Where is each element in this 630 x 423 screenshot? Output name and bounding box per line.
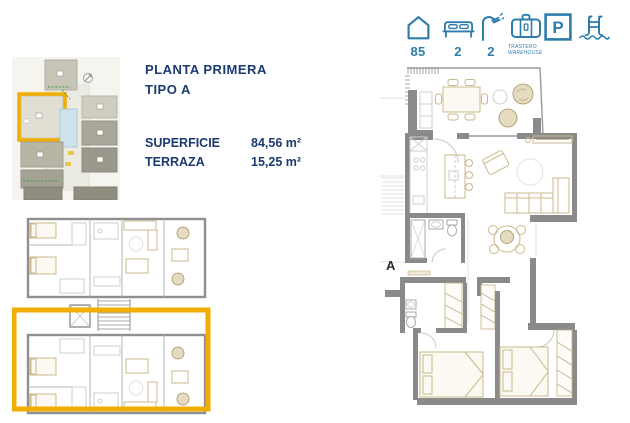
stairwell-common [380,98,406,262]
bedroom1-door-arc [421,333,436,348]
bedroom-1 [413,328,483,400]
pool-icon [577,8,611,41]
area-label: SUPERFICIE [145,134,251,153]
stat-bedrooms-value: 2 [454,44,462,59]
vanity-counter [408,271,430,275]
terrace-plant [499,109,517,127]
patio [468,218,536,323]
area-row-superficie: SUPERFICIE 84,56 m² [145,134,301,153]
overview-unit-top [28,219,205,297]
area-row-terraza: TERRAZA 15,25 m² [145,153,301,172]
bathroom-1 [405,213,465,263]
site-building-top [45,60,77,90]
site-marker [68,151,74,155]
armchair [482,150,509,175]
area-value: 15,25 m² [251,153,301,172]
floor-overview-plan [12,213,212,418]
terrace-plant [513,84,533,104]
terrace-side-table [493,90,507,104]
stat-bathrooms-value: 2 [487,44,495,59]
stat-storage: TRASTERO WAREHOUSE [508,8,544,56]
exterior-wall [417,398,577,405]
stat-pool [576,8,612,41]
kitchen [410,137,473,215]
plan-title: PLANTA PRIMERA TIPO A [145,60,267,100]
overview-stairs [70,299,130,331]
floorplan-page: { "colors": { "navy": "#1b3a70", "teal":… [0,0,630,423]
area-table: SUPERFICIE 84,56 m² TERRAZA 15,25 m² [145,134,301,172]
bedroom2-door-arc [537,330,554,347]
stat-bathrooms: 2 [477,8,505,59]
overview-unit-bottom [28,335,205,413]
kitchen-island [445,155,473,198]
wardrobe [557,330,572,396]
stat-storage-line2: WAREHOUSE [508,50,543,56]
bed-icon [442,8,475,41]
site-plan-thumbnail [12,57,120,200]
parking-glyph: P [552,18,563,37]
site-buildings-right [82,96,117,172]
unit-label: A [386,258,396,273]
house-icon [405,8,432,41]
living-room [482,136,572,213]
suitcase-icon [509,8,543,41]
stat-area-value: 85 [410,44,425,59]
parking-icon: P [544,8,572,41]
bathroom-2 [385,271,467,333]
bath-door-arc [432,249,446,263]
stat-parking: P [543,8,572,41]
stat-bedrooms: 2 [440,8,476,59]
terrace-cabinet [420,92,432,128]
detail-floor-plan: A [380,58,630,422]
site-building-highlighted [21,96,63,138]
shower-icon [478,8,504,41]
terrace [405,68,543,140]
plan-title-line1: PLANTA PRIMERA [145,60,267,80]
area-value: 84,56 m² [251,134,301,153]
stat-area: 85 [402,8,434,59]
bedroom-2 [500,323,577,405]
stat-storage-label: TRASTERO WAREHOUSE [508,44,543,56]
round-rug [517,159,543,185]
bed-1 [420,352,483,397]
plan-title-line2: TIPO A [145,80,267,100]
terrace-door-arc [434,139,458,163]
bed-2 [500,347,548,396]
patio-plant [501,231,514,244]
terrace-dining-table [436,80,488,121]
site-marker [65,162,71,166]
area-label: TERRAZA [145,153,251,172]
site-pool [60,109,77,147]
